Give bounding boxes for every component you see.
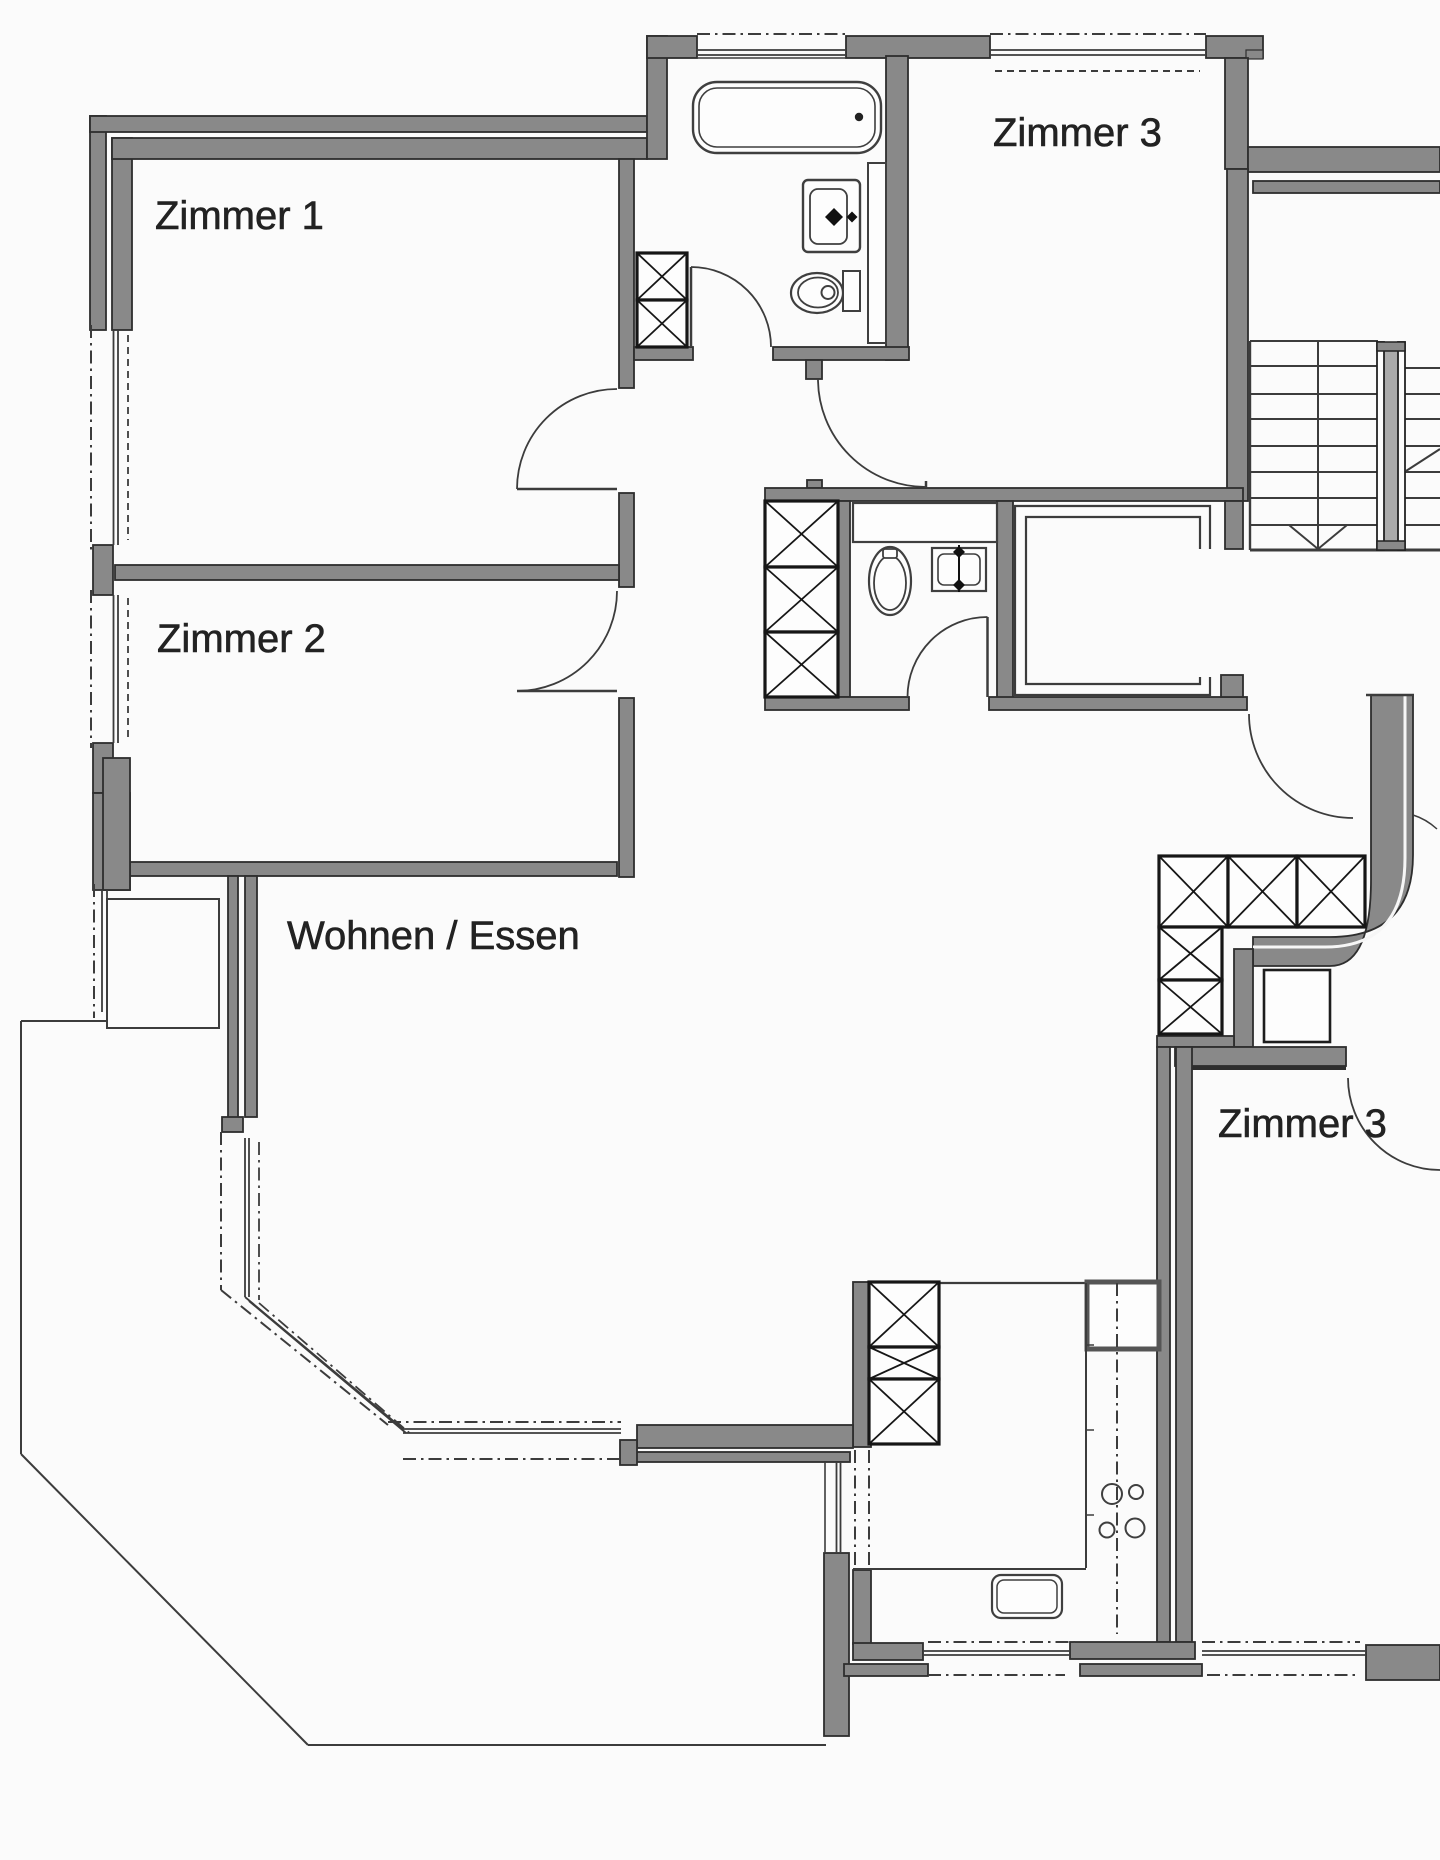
svg-text:Wohnen / Essen: Wohnen / Essen <box>287 914 580 958</box>
svg-text:Zimmer 3: Zimmer 3 <box>993 111 1162 155</box>
svg-text:Zimmer 3: Zimmer 3 <box>1218 1102 1387 1146</box>
svg-text:Zimmer 2: Zimmer 2 <box>157 617 326 661</box>
svg-text:Zimmer 1: Zimmer 1 <box>155 194 324 238</box>
